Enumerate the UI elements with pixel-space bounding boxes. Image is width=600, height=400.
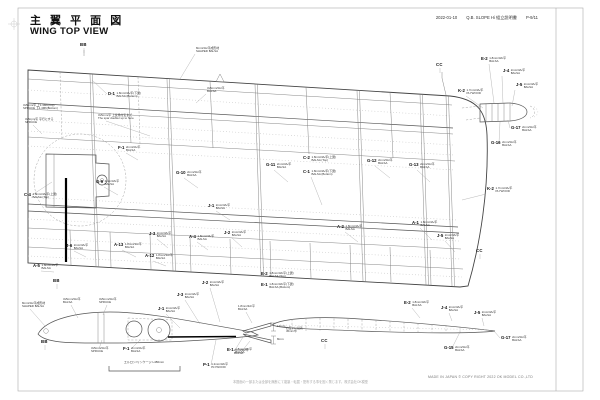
part-callout: J-52mm/3A/平BALSA <box>437 234 459 241</box>
part-callout: A-41.8mm/3A/平BALSA <box>189 235 214 242</box>
part-callout: J-12mm/3A/平BALSA <box>158 307 180 314</box>
part-callout: J-42mm/3A/平BALSA <box>441 306 463 313</box>
part-callout: 3x5mm/3A/平SPRUCE <box>91 347 109 354</box>
part-callout: 3x5mm/平 上1.4M6(Top)SPRUCE 下1.4M6(Bottom) <box>23 104 58 111</box>
part-callout: 2mm/3A/平BALSA <box>234 349 248 356</box>
part-callout: G-122mm/3A/平BALSA <box>367 159 393 166</box>
section-marker-cc: CC <box>476 248 483 253</box>
part-callout: 3x5mm/平 平行にするSPRUCE <box>25 118 53 125</box>
part-callout: J-32mm/3A/平BALSA <box>177 293 199 300</box>
part-callout: K-21.7mm/3A/平PLYWOOD <box>487 187 512 194</box>
part-callout: A-21.8mm/3A/平BALSA <box>337 225 362 232</box>
part-callout: J-32mm/3A/平BALSA <box>149 232 171 239</box>
part-callout: F-12mm/3A/平BALSA <box>123 347 145 354</box>
part-callout: F-12mm/3A/平BALSA <box>118 146 140 153</box>
part-callout: J-52mm/3A/平BALSA <box>474 311 496 318</box>
part-callout: 3x5mm/3A/平BALSA <box>207 87 225 94</box>
footer-copyright: MADE IN JAPAN © COPY RIGHT 2022 OK MODEL… <box>428 375 533 379</box>
section-marker-bb: BB <box>80 42 87 47</box>
part-callout: A-121.8mm/3A/平BALSA <box>145 254 173 261</box>
part-callout: J-22mm/3A/平BALSA <box>202 281 224 288</box>
footer-disclaimer: 本図面の一部または全部を無断にて複製・転載・配布する事を固く禁じます。株式会社O… <box>233 379 368 384</box>
part-callout: K-21.7mm/3A/平PLYWOOD <box>458 89 483 96</box>
part-callout: 8mm/3A/平成形材SHAPED BALSA <box>22 302 45 309</box>
part-callout: G-92mm/3A/平BALSA <box>96 180 119 187</box>
part-callout: 8mm/3A/平成形材SHAPED BALSA <box>196 47 219 54</box>
part-callout: J-52mm/3A/平BALSA <box>516 83 538 90</box>
part-callout: C-11.8mm/3A/平(下翼)BALSA (Bottom) <box>303 170 336 177</box>
part-callout: J-62mm/3A/平BALSA <box>66 244 88 251</box>
part-callout: G-172mm/3A/平BALSA <box>501 336 527 343</box>
part-callout: C-41.8mm/3A/平(上翼)BALSA (Top) <box>24 193 57 200</box>
part-callout: P-11.2mm/3A/平PLYWOOD <box>203 363 228 370</box>
part-callout: J-12mm/3A/平BALSA <box>208 204 230 211</box>
part-callout: J-42mm/3A/平BALSA <box>503 69 525 76</box>
section-marker-bb: BB <box>41 339 48 344</box>
part-callout: A-131.8mm/3A/平BALSA <box>114 243 142 250</box>
part-callout: A-11.8mm/3A/平BALSA <box>412 221 437 228</box>
part-callout: G-132mm/3A/平BALSA <box>409 163 435 170</box>
section-marker-cc: CC <box>321 338 328 343</box>
section-marker-bb: BB <box>53 278 60 283</box>
part-callout: E-21.8mm/3A/平BALSA <box>481 57 506 64</box>
part-callout: E-11.8mm/3A/平(下翼)BALSA (Bottom) <box>261 283 294 290</box>
part-callout: E-21.8mm/3A/平BALSA <box>404 301 429 308</box>
part-callout: G-112mm/3A/平BALSA <box>266 163 291 170</box>
part-callout: J-22mm/3A/平BALSA <box>224 231 246 238</box>
part-callout: D-11.8mm/3A/平(下翼)BALSA (Bottom) <box>108 92 141 99</box>
part-callout: C-21.8mm/3A/平(上翼)BALSA (Top) <box>303 156 336 163</box>
section-marker-cc: CC <box>436 62 443 67</box>
part-callout: 3x5mm/平 上反角付近までThe spar doubler up to he… <box>98 114 134 121</box>
part-callout: G-152mm/3A/平BALSA <box>444 346 470 353</box>
part-callout: G-162mm/3A/平BALSA <box>491 141 517 148</box>
part-callout: 3x5mm/3A/平SPRUCE <box>99 298 117 305</box>
part-callout: G-102mm/3A/平BALSA <box>176 171 202 178</box>
part-callout: G-172mm/3A/平BALSA <box>511 126 537 133</box>
callout-layer: D-11.8mm/3A/平(下翼)BALSA (Bottom)3x5mm/平 上… <box>0 0 600 400</box>
part-callout: 3x5mm/3A/平BALSA <box>63 298 81 305</box>
part-callout: A-51.8mm/3A/平BALSA <box>33 264 58 271</box>
drawing-sheet: 主 翼 平 面 図 WING TOP VIEW 2022-01-10 Q.B. … <box>0 0 600 400</box>
part-callout: E-21.8mm/3A/平(上翼)BALSA (Top) <box>261 272 294 279</box>
part-callout: 1.8mm/3A/平BALSA <box>238 305 255 312</box>
